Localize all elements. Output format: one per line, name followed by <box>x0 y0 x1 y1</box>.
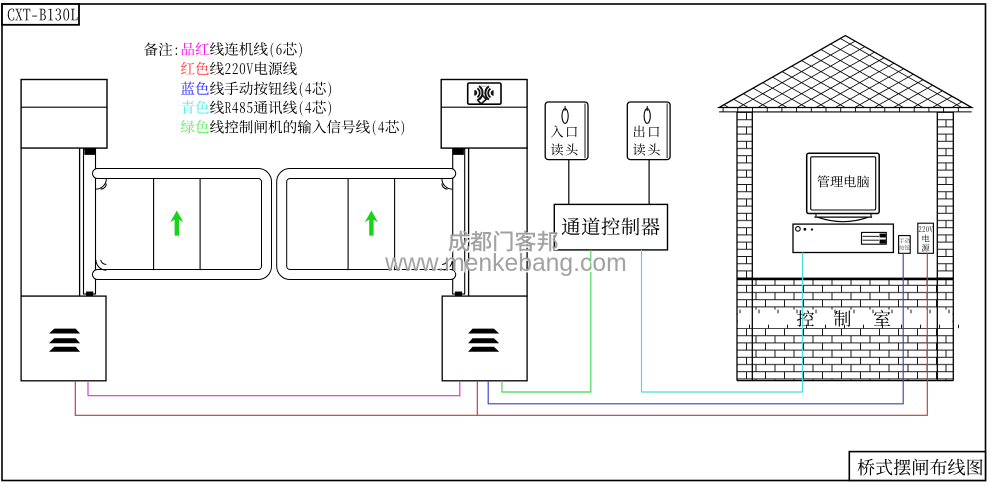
svg-text:www.menkebang.com: www.menkebang.com <box>384 250 627 277</box>
